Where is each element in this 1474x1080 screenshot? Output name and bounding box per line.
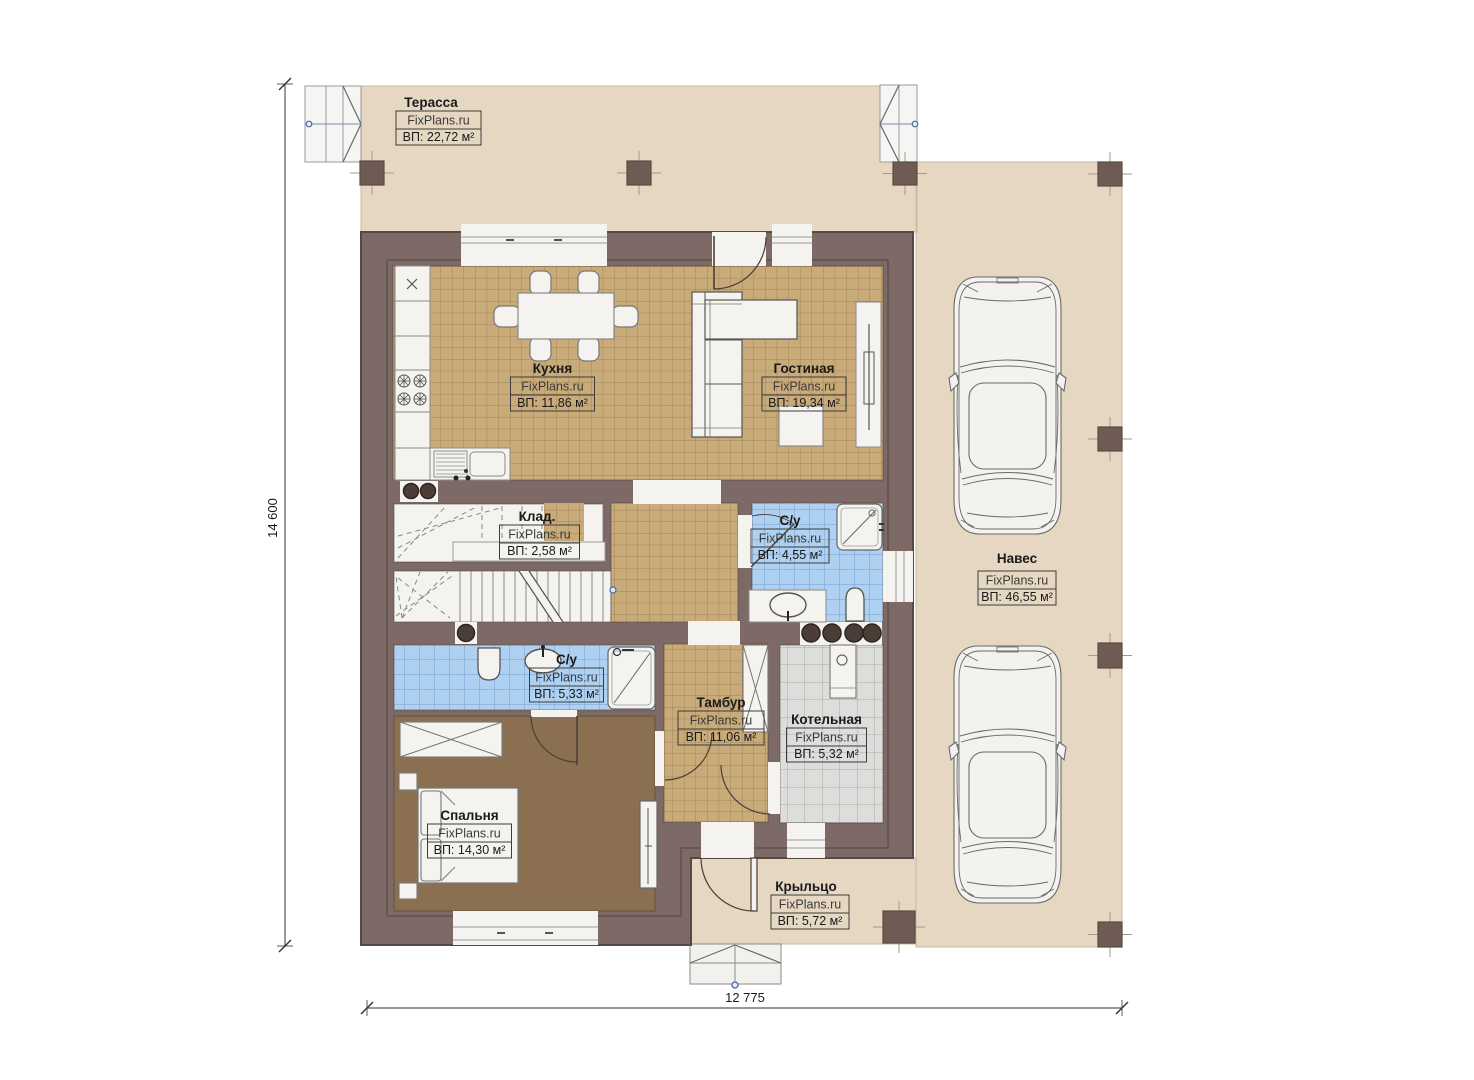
svg-text:FixPlans.ru: FixPlans.ru [795,731,858,745]
svg-text:FixPlans.ru: FixPlans.ru [535,671,598,685]
svg-text:ВП: 11,86 м²: ВП: 11,86 м² [517,396,588,410]
svg-text:ВП: 11,06 м²: ВП: 11,06 м² [686,730,757,744]
svg-text:FixPlans.ru: FixPlans.ru [508,528,571,542]
svg-text:Кухня: Кухня [533,361,572,376]
svg-text:ВП: 5,33 м²: ВП: 5,33 м² [534,687,599,701]
svg-text:ВП: 5,32 м²: ВП: 5,32 м² [794,747,859,761]
svg-text:Тамбур: Тамбур [697,695,746,710]
svg-text:С/у: С/у [556,652,578,667]
svg-text:ВП: 19,34 м²: ВП: 19,34 м² [768,396,840,410]
svg-text:ВП: 22,72 м²: ВП: 22,72 м² [403,130,475,144]
svg-text:С/у: С/у [779,513,801,528]
svg-text:ВП: 5,72 м²: ВП: 5,72 м² [778,914,843,928]
svg-text:ВП: 2,58 м²: ВП: 2,58 м² [507,544,572,558]
svg-text:ВП: 4,55 м²: ВП: 4,55 м² [758,548,823,562]
svg-text:FixPlans.ru: FixPlans.ru [773,380,836,394]
svg-text:Крыльцо: Крыльцо [775,879,836,894]
svg-text:ВП: 14,30 м²: ВП: 14,30 м² [434,843,506,857]
svg-text:Клад.: Клад. [519,509,556,524]
svg-text:12 775: 12 775 [725,990,765,1005]
svg-text:FixPlans.ru: FixPlans.ru [779,898,842,912]
svg-text:FixPlans.ru: FixPlans.ru [407,114,470,128]
svg-text:Спальня: Спальня [440,808,498,823]
svg-text:ВП: 46,55 м²: ВП: 46,55 м² [981,590,1053,604]
svg-text:FixPlans.ru: FixPlans.ru [986,574,1049,588]
svg-text:FixPlans.ru: FixPlans.ru [759,532,822,546]
svg-text:Навес: Навес [997,551,1038,566]
svg-text:FixPlans.ru: FixPlans.ru [438,827,501,841]
svg-text:Котельная: Котельная [791,712,862,727]
svg-text:FixPlans.ru: FixPlans.ru [690,714,753,728]
svg-text:14 600: 14 600 [265,498,280,538]
svg-text:Терасса: Терасса [404,95,458,110]
svg-text:Гостиная: Гостиная [773,361,834,376]
svg-text:FixPlans.ru: FixPlans.ru [521,380,584,394]
